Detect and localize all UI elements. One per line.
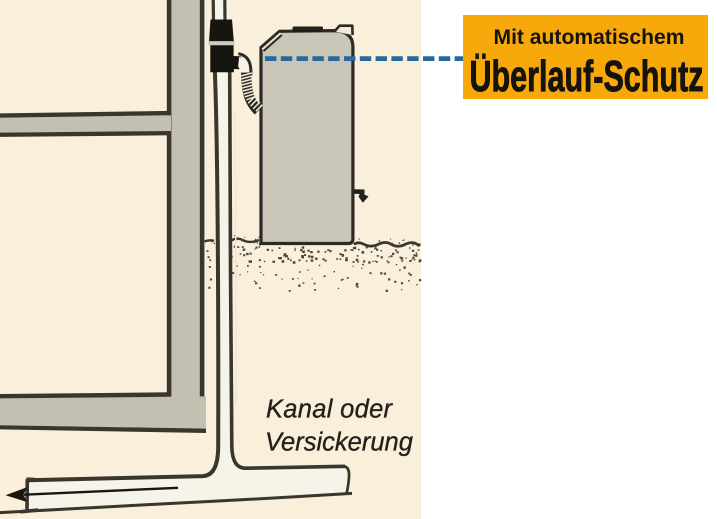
svg-text:Mit automatischem: Mit automatischem — [494, 25, 685, 49]
svg-text:Versickerung: Versickerung — [265, 429, 413, 457]
svg-text:Überlauf-Schutz: Überlauf-Schutz — [470, 52, 704, 101]
svg-text:Kanal oder: Kanal oder — [266, 396, 394, 424]
